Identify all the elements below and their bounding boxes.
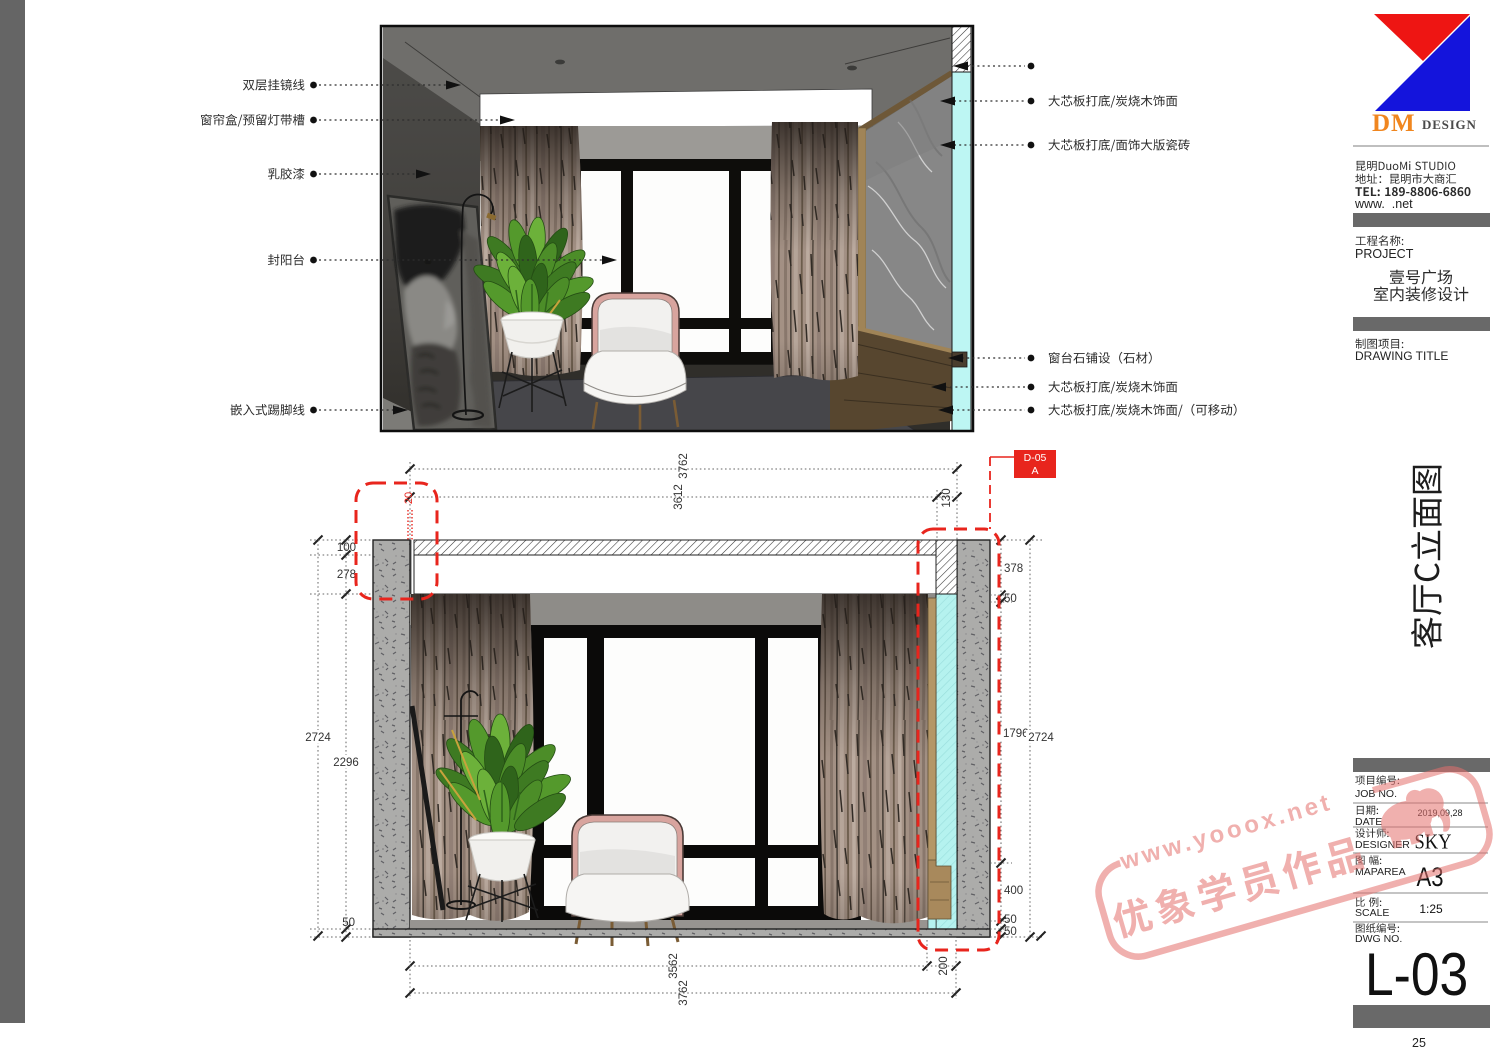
svg-text:50: 50 <box>342 917 355 929</box>
svg-text:1796: 1796 <box>1003 728 1029 740</box>
svg-text:50: 50 <box>1004 593 1017 605</box>
svg-text:3762: 3762 <box>678 980 690 1006</box>
svg-text:L-03: L-03 <box>1365 940 1468 1008</box>
svg-text:3612: 3612 <box>673 484 685 510</box>
svg-text:278: 278 <box>337 569 356 581</box>
svg-text:130: 130 <box>941 488 953 507</box>
svg-text:1:25: 1:25 <box>1419 902 1443 916</box>
svg-text:100: 100 <box>337 542 356 554</box>
svg-text:DATE: DATE <box>1355 816 1382 828</box>
svg-text:2724: 2724 <box>1028 732 1054 744</box>
svg-text:3562: 3562 <box>668 953 680 979</box>
svg-text:D-05: D-05 <box>1024 452 1047 464</box>
svg-text:2296: 2296 <box>333 757 359 769</box>
svg-text:400: 400 <box>1004 885 1023 897</box>
svg-text:SCALE: SCALE <box>1355 907 1389 919</box>
svg-text:3762: 3762 <box>678 453 690 479</box>
svg-text:www. .net: www. .net <box>1354 197 1413 211</box>
svg-text:2724: 2724 <box>305 732 331 744</box>
svg-text:PROJECT: PROJECT <box>1355 247 1414 261</box>
svg-text:DESIGN: DESIGN <box>1422 117 1477 132</box>
svg-text:DM: DM <box>1372 110 1416 137</box>
svg-text:A: A <box>1031 465 1038 477</box>
svg-text:378: 378 <box>1004 563 1023 575</box>
svg-text:DRAWING TITLE: DRAWING TITLE <box>1355 349 1448 363</box>
svg-text:25: 25 <box>1412 1036 1426 1050</box>
svg-text:50: 50 <box>1004 914 1017 926</box>
svg-text:50: 50 <box>1004 926 1017 938</box>
svg-text:200: 200 <box>938 956 950 975</box>
svg-text:20: 20 <box>403 492 415 504</box>
